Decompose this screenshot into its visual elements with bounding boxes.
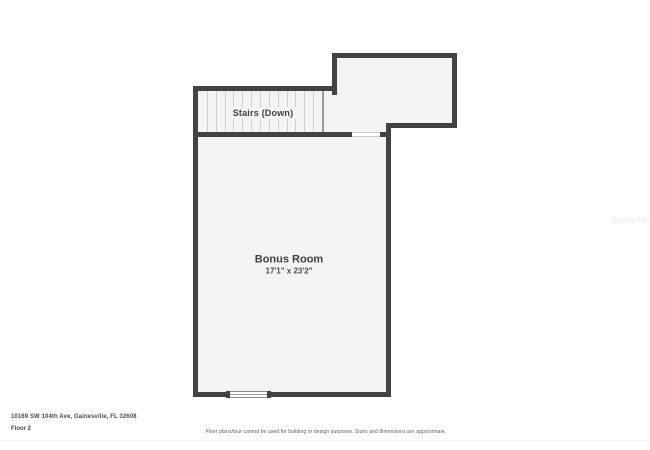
window-jamb-right [267, 391, 271, 398]
wall-bottom [193, 392, 391, 397]
floor-number-label: Floor 2 [11, 426, 31, 432]
window-glass-line [230, 394, 267, 395]
bonus-room-label: Bonus Room 17'1" x 23'2" [255, 254, 323, 277]
wall-bonus-top [193, 132, 352, 137]
wall-upper-room-bottom [386, 123, 457, 128]
property-address: 10169 SW 104th Ave, Gainesville, FL 3260… [11, 414, 137, 420]
room-name: Bonus Room [255, 254, 323, 267]
wall-stairs-top [193, 86, 337, 91]
wall-upper-room-right [452, 53, 457, 128]
room-dimensions: 17'1" x 23'2" [255, 267, 323, 277]
window [226, 391, 271, 398]
footer-divider [0, 440, 650, 441]
wall-bonus-right [386, 123, 391, 397]
door-opening [352, 132, 380, 137]
upper-room-fill [335, 56, 454, 125]
mls-watermark: StellarMLS [611, 215, 650, 225]
wall-upper-room-top [332, 53, 457, 58]
stairs-label: Stairs (Down) [230, 107, 297, 119]
stairs-right-edge [322, 91, 324, 132]
floor-plan-page: Stairs (Down) Bonus Room 17'1" x 23'2" S… [0, 0, 650, 450]
disclaimer-text: Floor plans/tour cannot be used for buil… [206, 429, 447, 435]
